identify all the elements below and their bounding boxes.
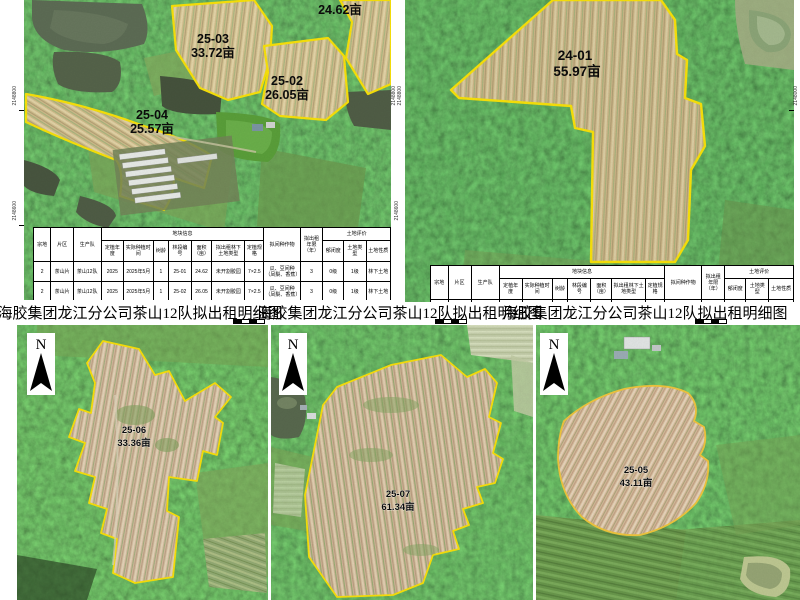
table-cell: 茶山12队	[73, 282, 101, 301]
table-cell: 2	[34, 282, 51, 301]
table-cell: 茶山12队	[73, 262, 101, 282]
aerial-map-25-05: N 25-05 43.11亩	[536, 325, 800, 600]
table-cell: 瓜、豆间种（凤梨、香蕉）	[264, 262, 300, 282]
table-cell: 茶山片	[51, 282, 74, 301]
axis-tick	[19, 225, 24, 226]
table-header-cell: 地块信息	[101, 228, 264, 241]
table-header-cell: 林段编号	[568, 279, 591, 300]
photo-grain	[405, 0, 794, 302]
table-header-cell: 定植规格	[245, 241, 264, 262]
scale-bar	[695, 319, 727, 324]
table-cell: 26.05	[191, 282, 212, 301]
table-cell: 茶山片	[51, 262, 74, 282]
table-header-cell: 树龄	[552, 279, 568, 300]
table-cell: 林下土地	[366, 282, 390, 301]
table-row: 2茶山片茶山12队20252025年5月125-0226.05未开割胶园7×2.…	[34, 282, 391, 301]
north-arrow: N	[540, 333, 568, 395]
table-header-cell: 拟出租年限（年）	[702, 266, 725, 300]
coordinate-label: 2148800	[13, 86, 18, 105]
table-header-cell: 定植年度	[101, 241, 124, 262]
scale-bar	[233, 319, 265, 324]
table-header-cell: 实际种植时间	[124, 241, 153, 262]
table-cell: 2	[34, 262, 51, 282]
scale-bar	[435, 319, 467, 324]
aerial-map-25-07: N 25-07 61.34亩	[271, 325, 533, 600]
map-title: 海胶集团龙江分公司茶山12队拟出租明细图	[502, 302, 787, 321]
table-cell: 2025	[101, 262, 124, 282]
table-cell: 24.62	[191, 262, 212, 282]
table-cell: 2025	[101, 282, 124, 301]
parcel-label-25-03-area: 33.72亩	[191, 45, 235, 60]
parcel-label-24-01-area: 55.97亩	[553, 63, 600, 79]
table-cell: 1级	[344, 262, 367, 282]
photo-grain	[536, 325, 800, 600]
table-header-cell: 拟出租林下土地类型	[612, 279, 645, 300]
north-arrow-label: N	[36, 337, 47, 353]
north-arrow-label: N	[288, 337, 299, 353]
parcel-label-25-01-area: 24.62亩	[318, 2, 362, 17]
parcel-table-top-left: 宗地 片区 生产队 地块信息 拟间种作物 拟出租年限（年） 土地评价 定植年度 …	[33, 227, 391, 298]
parcel-label-24-01-id: 24-01	[558, 48, 593, 63]
table-cell: 7×2.5	[245, 282, 264, 301]
table-header-cell: 拟出租年限（年）	[300, 228, 323, 262]
parcel-table: 宗地 片区 生产队 地块信息 拟间种作物 拟出租年限（年） 土地评价 定植年度 …	[430, 265, 794, 302]
coordinate-label: 2148000	[794, 86, 799, 105]
parcel-label-25-02-id: 25-02	[271, 74, 303, 88]
parcel-table: 宗地 片区 生产队 地块信息 拟间种作物 拟出租年限（年） 土地评价 定植年度 …	[33, 227, 391, 300]
table-header-cell: 土地性质	[366, 241, 390, 262]
aerial-map-top-right: 24-01 55.97亩	[405, 0, 794, 302]
table-header-cell: 宗地	[34, 228, 51, 262]
parcel-label-25-06-id: 25-06	[122, 425, 146, 436]
table-cell: 2025年5月	[124, 282, 153, 301]
parcel-label-25-05-area: 43.11亩	[620, 477, 653, 489]
table-cell: 1	[153, 282, 169, 301]
table-cell: 25-01	[169, 262, 192, 282]
parcel-label-25-06-area: 33.36亩	[117, 437, 151, 449]
table-header-cell: 实际种植时间	[522, 279, 552, 300]
table-cell: 瓜、豆间种（凤梨、香蕉）	[264, 282, 300, 301]
parcel-label-25-02-area: 26.05亩	[265, 87, 309, 102]
coordinate-label: 2148800	[398, 86, 403, 105]
parcel-label-25-04-area: 25.57亩	[130, 121, 174, 136]
parcel-label-25-07-area: 61.34亩	[381, 501, 415, 513]
table-header-cell: 生产队	[471, 266, 499, 300]
table-header-cell: 生产队	[73, 228, 101, 262]
parcel-table-top-right: 宗地 片区 生产队 地块信息 拟间种作物 拟出租年限（年） 土地评价 定植年度 …	[430, 265, 794, 302]
table-header-cell: 土地类型	[746, 279, 769, 300]
aerial-map-25-06: N 25-06 33.36亩	[17, 325, 268, 600]
table-header-cell: 郁闭度	[323, 241, 344, 262]
table-header-cell: 面积（亩）	[591, 279, 612, 300]
table-cell: 未开割胶园	[212, 282, 245, 301]
parcel-label-25-04-id: 25-04	[136, 108, 168, 122]
table-header-cell: 土地性质	[769, 279, 794, 300]
table-cell: 3	[300, 262, 323, 282]
table-header-cell: 林段编号	[169, 241, 192, 262]
map-title: 海胶集团龙江分公司茶山12队拟出租明细图	[257, 302, 542, 321]
table-body: 2茶山片茶山12队20252025年5月125-0124.62未开割胶园7×2.…	[34, 262, 391, 301]
panel-top-right-map: 24-01 55.97亩 宗地 片区 生产队 地块信息 拟间种作物	[405, 0, 794, 302]
coordinate-label: 2148600	[13, 201, 18, 220]
parcel-label-25-03-id: 25-03	[197, 32, 229, 46]
table-header-cell: 树龄	[153, 241, 169, 262]
table-header-cell: 片区	[448, 266, 471, 300]
panel-bottom-map-3: N 25-05 43.11亩	[536, 325, 800, 600]
photo-grain	[271, 325, 533, 600]
map-sheet: 24.62亩 25-03 33.72亩 25-02 26.05亩 25-04 2…	[0, 0, 800, 600]
table-cell: 2025年5月	[124, 262, 153, 282]
table-cell: 1	[153, 262, 169, 282]
table-cell: 7×2.5	[245, 262, 264, 282]
table-cell: 林下土地	[366, 262, 390, 282]
coordinate-label: 2148600	[395, 201, 400, 220]
panel-top-left-map: 24.62亩 25-03 33.72亩 25-02 26.05亩 25-04 2…	[0, 0, 391, 300]
table-row: 2茶山片茶山12队20252025年5月125-0124.62未开割胶园7×2.…	[34, 262, 391, 282]
axis-tick	[789, 110, 794, 111]
table-cell: 0级	[323, 282, 344, 301]
table-header-cell: 土地评价	[323, 228, 391, 241]
north-arrow: N	[27, 333, 55, 395]
panel-bottom-map-2: N 25-07 61.34亩	[271, 325, 533, 600]
table-header-cell: 宗地	[431, 266, 449, 300]
table-header-cell: 郁闭度	[725, 279, 746, 300]
table-header-cell: 拟间种作物	[264, 228, 300, 262]
table-cell: 25-02	[169, 282, 192, 301]
table-cell: 未开割胶园	[212, 262, 245, 282]
table-header-cell: 拟出租林下土地类型	[212, 241, 245, 262]
panel-bottom-map-1: N 25-06 33.36亩	[0, 325, 268, 600]
table-header-cell: 定植年度	[499, 279, 522, 300]
north-arrow-label: N	[549, 337, 560, 353]
table-cell: 3	[300, 282, 323, 301]
table-header-cell: 片区	[51, 228, 74, 262]
axis-tick	[19, 110, 24, 111]
parcel-label-25-05-id: 25-05	[624, 465, 649, 476]
table-header-cell: 土地评价	[725, 266, 794, 279]
north-arrow: N	[279, 333, 307, 395]
table-header-cell: 地块信息	[499, 266, 665, 279]
table-header-cell: 定植规格	[645, 279, 664, 300]
table-header-cell: 拟间种作物	[665, 266, 702, 300]
table-cell: 0级	[323, 262, 344, 282]
table-cell: 1级	[344, 282, 367, 301]
table-header-cell: 土地类型	[344, 241, 367, 262]
table-header-cell: 面积（亩）	[191, 241, 212, 262]
parcel-label-25-07-id: 25-07	[386, 489, 410, 500]
